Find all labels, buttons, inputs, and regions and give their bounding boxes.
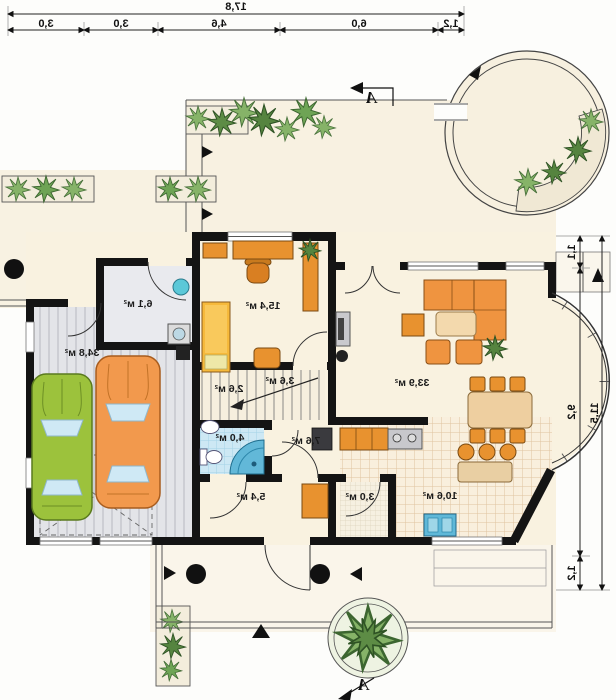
pouf	[254, 348, 280, 368]
tree-dot	[4, 259, 24, 279]
section-label: A	[357, 675, 369, 694]
toilet	[206, 451, 222, 464]
porch-column	[310, 564, 330, 584]
armchair	[426, 340, 450, 364]
utility-sink	[173, 279, 189, 295]
boiler	[176, 346, 190, 360]
window	[26, 322, 34, 352]
side-table	[402, 314, 424, 336]
pillow	[205, 355, 227, 369]
dim-seg: 6,0	[351, 18, 366, 30]
dining-chair	[510, 429, 525, 443]
floor-plan-svg: 17,8 3,0 3,0 4,6 6,0 1,2 1,1 9,2 1,2 11,…	[0, 0, 616, 700]
room-label-study: 15,4 м²	[245, 300, 280, 312]
room-label-corridor: 7,6 м²	[291, 435, 320, 447]
bar-stool	[458, 444, 474, 460]
hall-closet	[302, 484, 328, 518]
section-label: A	[365, 88, 377, 107]
dining-chair	[490, 377, 505, 391]
car-green	[32, 374, 92, 520]
dim-total-width: 17,8	[225, 1, 246, 13]
room-label-utility: 6,1 м²	[123, 298, 152, 310]
dim-seg: 1,2	[566, 565, 578, 580]
cabinet	[203, 243, 227, 258]
floor-plan-page: 17,8 3,0 3,0 4,6 6,0 1,2 1,1 9,2 1,2 11,…	[0, 0, 616, 700]
stairs-treads	[200, 370, 325, 420]
room-label-stairs: 2,6 м²	[214, 383, 243, 395]
armchair	[456, 340, 482, 364]
room-label-garage: 34,8 м²	[64, 347, 99, 359]
bar-counter	[458, 462, 512, 482]
dim-seg: 9,2	[566, 404, 578, 419]
dim-seg: 1,1	[566, 244, 578, 259]
desk-chair	[247, 263, 269, 283]
dining-chair	[510, 377, 525, 391]
room-label-kitchen: 10,6 м²	[422, 490, 457, 502]
room-label-living: 33,9 м²	[394, 377, 429, 389]
dim-seg: 4,6	[211, 18, 226, 30]
dim-seg: 3,0	[38, 18, 53, 30]
room-label-hall: 5,4 м²	[236, 491, 265, 503]
bar-stool	[479, 444, 495, 460]
room-label-pantry: 3,0 м²	[345, 491, 374, 503]
kitchen-counter	[340, 428, 388, 450]
dining-chair	[470, 377, 485, 391]
bar-stool	[500, 444, 516, 460]
room-label-bathroom: 4,0 м²	[215, 432, 244, 444]
coffee-table	[436, 312, 476, 336]
room-label-vestibule: 3,6 м²	[265, 375, 294, 387]
dim-seg: 1,2	[443, 18, 458, 30]
fireplace	[336, 350, 348, 362]
dining-chair	[470, 429, 485, 443]
dining-chair	[490, 429, 505, 443]
dim-total-depth: 11,5	[589, 403, 601, 424]
car-orange	[96, 356, 160, 508]
desk	[233, 241, 293, 259]
porch-column	[186, 564, 206, 584]
dining-table	[468, 392, 532, 428]
dim-seg: 3,0	[113, 18, 128, 30]
